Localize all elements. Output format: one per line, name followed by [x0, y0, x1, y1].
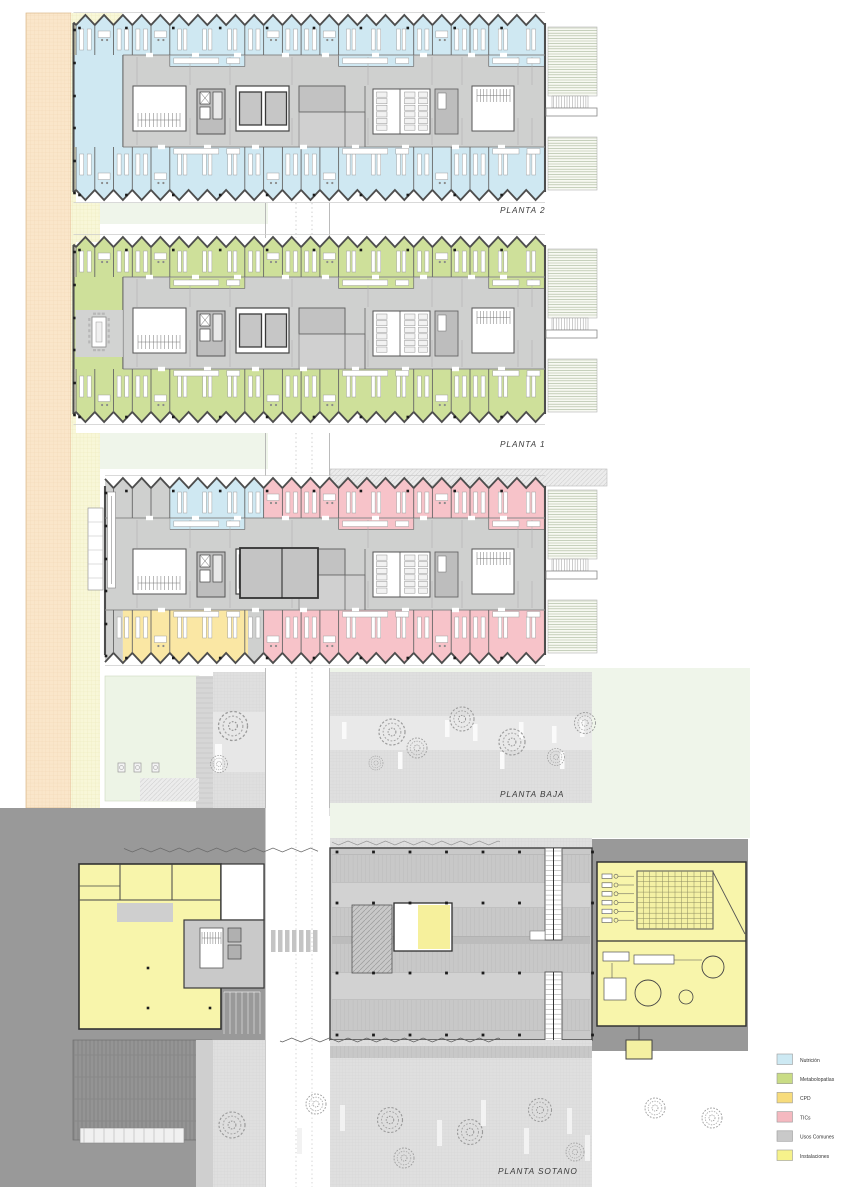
svg-text:PLANTA BAJA: PLANTA BAJA — [500, 789, 564, 799]
svg-text:Usos Comunes: Usos Comunes — [800, 1135, 835, 1141]
svg-text:PLANTA 1: PLANTA 1 — [500, 439, 545, 449]
svg-text:Nutrición: Nutrición — [800, 1058, 820, 1064]
svg-text:TICs: TICs — [800, 1115, 811, 1121]
svg-text:PLANTA 2: PLANTA 2 — [500, 205, 545, 215]
svg-text:Metabolopatías: Metabolopatías — [800, 1077, 835, 1083]
svg-text:Instalaciones: Instalaciones — [800, 1154, 830, 1160]
svg-text:CPD: CPD — [800, 1096, 811, 1102]
svg-text:PLANTA SOTANO: PLANTA SOTANO — [498, 1166, 578, 1176]
